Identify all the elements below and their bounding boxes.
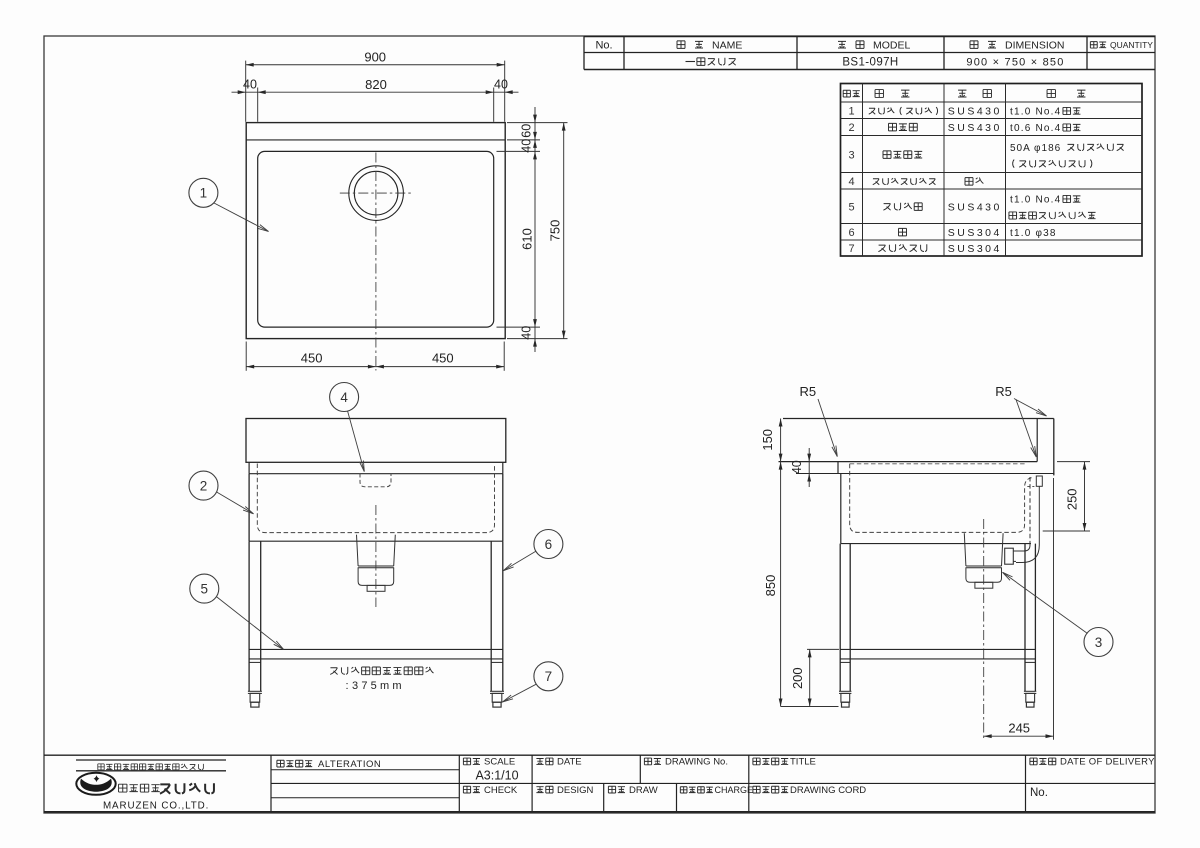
svg-text:40: 40 xyxy=(243,78,257,92)
svg-text:2: 2 xyxy=(200,478,208,493)
svg-text:450: 450 xyxy=(432,350,454,365)
svg-text:No.: No. xyxy=(1030,787,1048,799)
svg-text:40: 40 xyxy=(790,460,804,474)
svg-text:900 × 750 × 850: 900 × 750 × 850 xyxy=(966,57,1064,69)
svg-text:QUANTITY: QUANTITY xyxy=(1110,40,1153,50)
svg-text:A3:1/10: A3:1/10 xyxy=(475,768,518,782)
svg-text:t1.0 φ38: t1.0 φ38 xyxy=(1010,228,1057,239)
svg-text:SUS430: SUS430 xyxy=(948,202,1002,214)
svg-text:750: 750 xyxy=(548,220,563,242)
svg-text:SUS304: SUS304 xyxy=(948,227,1002,239)
svg-text:40: 40 xyxy=(520,326,534,340)
svg-text:250: 250 xyxy=(1065,488,1080,510)
svg-text:200: 200 xyxy=(790,667,805,689)
svg-text:40: 40 xyxy=(520,139,534,153)
svg-text:1: 1 xyxy=(848,106,854,118)
svg-text:375mm: 375mm xyxy=(352,680,405,692)
svg-text:245: 245 xyxy=(1008,720,1030,735)
svg-text:6: 6 xyxy=(545,537,553,552)
svg-text:3: 3 xyxy=(848,150,854,162)
svg-text:CHARGE: CHARGE xyxy=(715,785,754,795)
svg-text:NAME: NAME xyxy=(712,39,742,51)
svg-text:900: 900 xyxy=(364,50,386,65)
svg-text:7: 7 xyxy=(545,669,553,684)
svg-text:820: 820 xyxy=(365,77,387,92)
svg-text:MODEL: MODEL xyxy=(873,39,911,51)
svg-text:DATE: DATE xyxy=(557,757,582,768)
svg-text:5: 5 xyxy=(201,581,209,596)
svg-text:SUS430: SUS430 xyxy=(948,106,1002,118)
svg-text:R5: R5 xyxy=(995,384,1012,399)
svg-text:5: 5 xyxy=(848,202,854,214)
svg-text:850: 850 xyxy=(763,575,778,597)
svg-text:DRAWING No.: DRAWING No. xyxy=(665,757,728,768)
svg-text:7: 7 xyxy=(848,243,854,255)
svg-text:TITLE: TITLE xyxy=(790,757,816,768)
svg-text:60: 60 xyxy=(520,124,534,138)
svg-text:DIMENSION: DIMENSION xyxy=(1005,39,1065,51)
svg-text:6: 6 xyxy=(848,227,854,239)
svg-text::: : xyxy=(346,680,349,692)
svg-text:DESIGN: DESIGN xyxy=(557,785,594,796)
svg-text:4: 4 xyxy=(340,390,348,405)
svg-text:40: 40 xyxy=(494,78,508,92)
svg-text:CHECK: CHECK xyxy=(484,785,518,796)
svg-text:610: 610 xyxy=(520,228,535,250)
svg-text:450: 450 xyxy=(301,350,323,365)
svg-text:R5: R5 xyxy=(799,384,816,399)
svg-text:3: 3 xyxy=(1095,635,1103,650)
svg-text:DATE OF DELIVERY: DATE OF DELIVERY xyxy=(1060,757,1155,768)
svg-text:DRAWING CORD: DRAWING CORD xyxy=(790,785,866,796)
svg-text:t0.6 No.4: t0.6 No.4 xyxy=(1010,123,1061,134)
svg-text:t1.0 No.4: t1.0 No.4 xyxy=(1010,195,1061,206)
svg-text:4: 4 xyxy=(848,176,854,188)
svg-text:ALTERATION: ALTERATION xyxy=(318,759,381,770)
svg-text:No.: No. xyxy=(595,39,612,51)
svg-text:DRAW: DRAW xyxy=(629,785,658,796)
svg-text:t1.0 No.4: t1.0 No.4 xyxy=(1010,107,1061,118)
svg-text:50A φ186: 50A φ186 xyxy=(1010,143,1061,154)
svg-text:1: 1 xyxy=(200,186,208,201)
svg-text:SUS430: SUS430 xyxy=(948,122,1002,134)
svg-text:SCALE: SCALE xyxy=(484,757,515,768)
svg-text:BS1-097H: BS1-097H xyxy=(842,57,898,69)
svg-text:150: 150 xyxy=(760,429,775,451)
svg-text:2: 2 xyxy=(848,122,854,134)
svg-text:MARUZEN CO.,LTD.: MARUZEN CO.,LTD. xyxy=(103,801,209,812)
svg-text:SUS304: SUS304 xyxy=(948,243,1002,255)
